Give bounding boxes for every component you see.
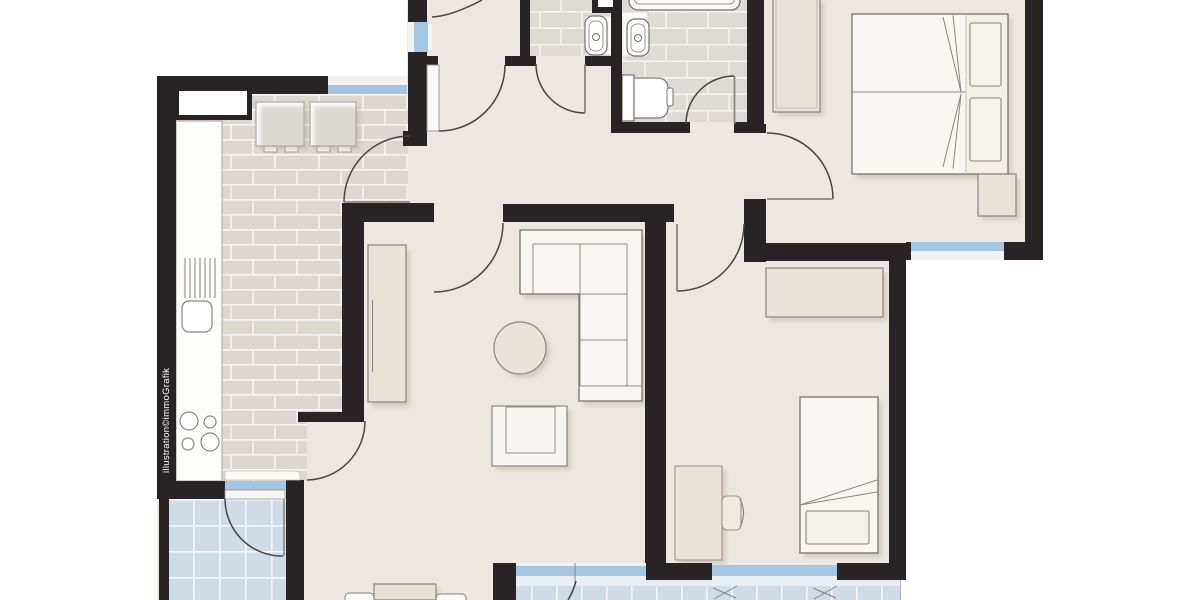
svg-text:illustration©immoGrafik: illustration©immoGrafik (161, 368, 172, 473)
